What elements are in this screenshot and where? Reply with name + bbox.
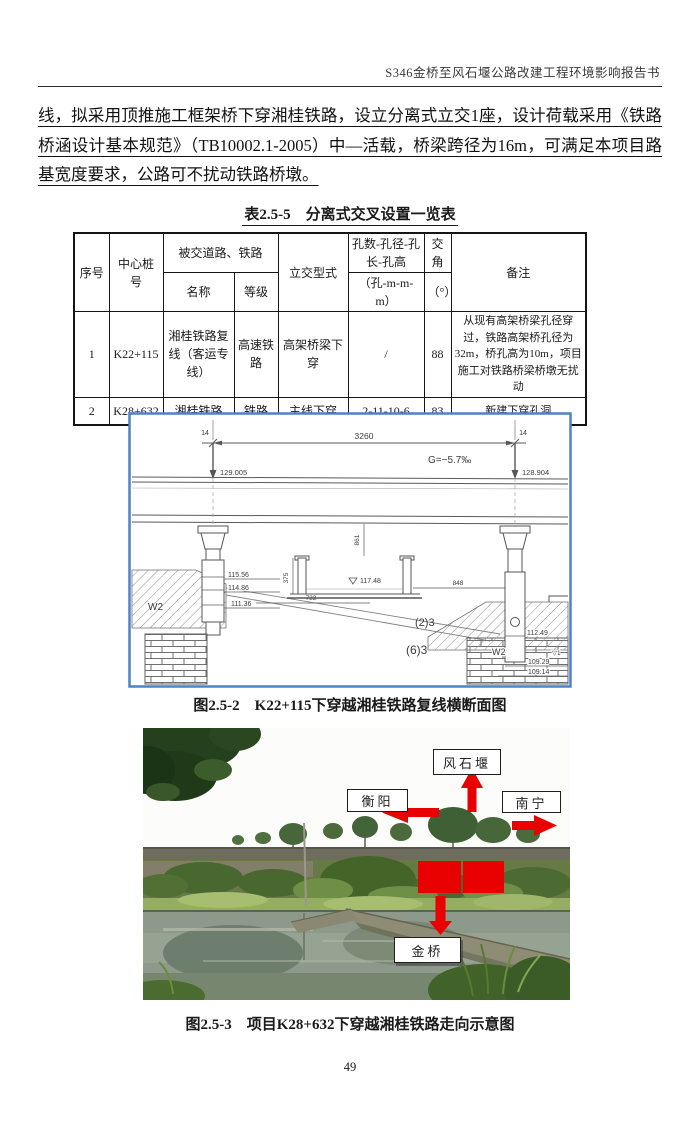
cell-remark: 从现有高架桥梁孔径穿过，铁路高架桥孔径为32m，桥孔高为10m，项目施工对铁路桥… — [451, 312, 586, 398]
label-hengyang: 衡阳 — [347, 789, 408, 812]
col-header-angle: 交角 — [424, 233, 451, 273]
label-fengshiyan: 风石堰 — [433, 749, 501, 775]
col-header-type: 立交型式 — [278, 233, 348, 312]
elev-112-49-label: 112.49 — [527, 630, 548, 637]
dim-offset-left-label: 14 — [201, 430, 209, 437]
elev-115-56-label: 115.56 — [228, 572, 249, 579]
dim-offset-right-label: 14 — [519, 430, 527, 437]
table-caption: 表2.5-5 分离式交叉设置一览表 — [0, 203, 700, 224]
elev-109-14-label: 109.14 — [528, 669, 550, 676]
label-nanning: 南宁 — [502, 791, 561, 813]
south-arrow — [436, 896, 446, 923]
elev-109-29-label: 109.29 — [528, 659, 550, 666]
left-brick-wall — [145, 634, 207, 684]
elev-rail-right-label: 128.904 — [522, 468, 549, 477]
cell-no: 1 — [74, 312, 109, 398]
left-wall-label: W2 — [148, 602, 163, 613]
cell-holes: / — [348, 312, 424, 398]
cell-angle: 88 — [424, 312, 451, 398]
right-marker-label: ▽1 — [552, 650, 561, 657]
cross-section-diagram: 3260 14 14 129.005 128.904 G=−5.7‰ — [128, 412, 572, 688]
cell-grade: 高速铁路 — [234, 312, 278, 398]
col-header-holes-unit: （孔-m-m-m） — [348, 273, 424, 312]
body-paragraph: 线，拟采用顶推施工框架桥下穿湘桂铁路，设立分离式立交1座，设计荷载采用《铁路桥涵… — [38, 101, 662, 190]
dim-span-label: 3260 — [355, 431, 374, 441]
col-header-holes: 孔数-孔径-孔长-孔高 — [348, 233, 424, 273]
site-photo: 风石堰 衡阳 南宁 金桥 — [143, 728, 570, 1000]
page-number: 49 — [0, 1060, 700, 1075]
report-header-title: S346金桥至风石堰公路改建工程环境影响报告书 — [385, 62, 660, 81]
cell-type: 高架桥梁下穿 — [278, 312, 348, 398]
right-wall-label: W2 — [492, 647, 506, 657]
header-rule — [38, 86, 662, 87]
dim-375-label: 375 — [283, 572, 290, 583]
grade-label: G=−5.7‰ — [428, 455, 471, 466]
col-header-no: 序号 — [74, 233, 109, 312]
figure1-caption: 图2.5-2 K22+115下穿越湘桂铁路复线横断面图 — [0, 694, 700, 715]
dim-848-label: 848 — [453, 580, 464, 587]
elev-111-36-label: 111.36 — [231, 601, 251, 608]
cell-station: K22+115 — [109, 312, 163, 398]
cell-name: 湘桂铁路复线（客运专线） — [163, 312, 234, 398]
track-a-label: (2)3 — [415, 617, 435, 629]
separated-crossing-table: 序号 中心桩号 被交道路、铁路 立交型式 孔数-孔径-孔长-孔高 交角 备注 名… — [73, 232, 587, 426]
col-header-grade: 等级 — [234, 273, 278, 312]
track-b-label: (6)3 — [406, 643, 428, 657]
cell-no: 2 — [74, 397, 109, 425]
table-row: 1 K22+115 湘桂铁路复线（客运专线） 高速铁路 高架桥梁下穿 / 88 … — [74, 312, 586, 398]
col-header-angle-unit: （°） — [424, 273, 451, 312]
north-arrow — [468, 786, 477, 812]
col-header-remark: 备注 — [451, 233, 586, 312]
figure2-caption: 图2.5-3 项目K28+632下穿越湘桂铁路走向示意图 — [0, 1013, 700, 1034]
railway-highlight-rects — [418, 861, 504, 893]
elev-114-86-label: 114.86 — [228, 585, 249, 592]
col-header-crossed: 被交道路、铁路 — [163, 233, 278, 273]
pier-detail-circle — [511, 618, 520, 627]
label-jinqiao: 金桥 — [394, 937, 461, 963]
elev-rail-left-label: 129.005 — [220, 468, 247, 477]
west-arrow — [406, 808, 439, 817]
col-header-station: 中心桩号 — [109, 233, 163, 312]
col-header-name: 名称 — [163, 273, 234, 312]
elev-road-label: 117.48 — [360, 578, 381, 585]
dim-861-label: 861 — [354, 534, 361, 545]
